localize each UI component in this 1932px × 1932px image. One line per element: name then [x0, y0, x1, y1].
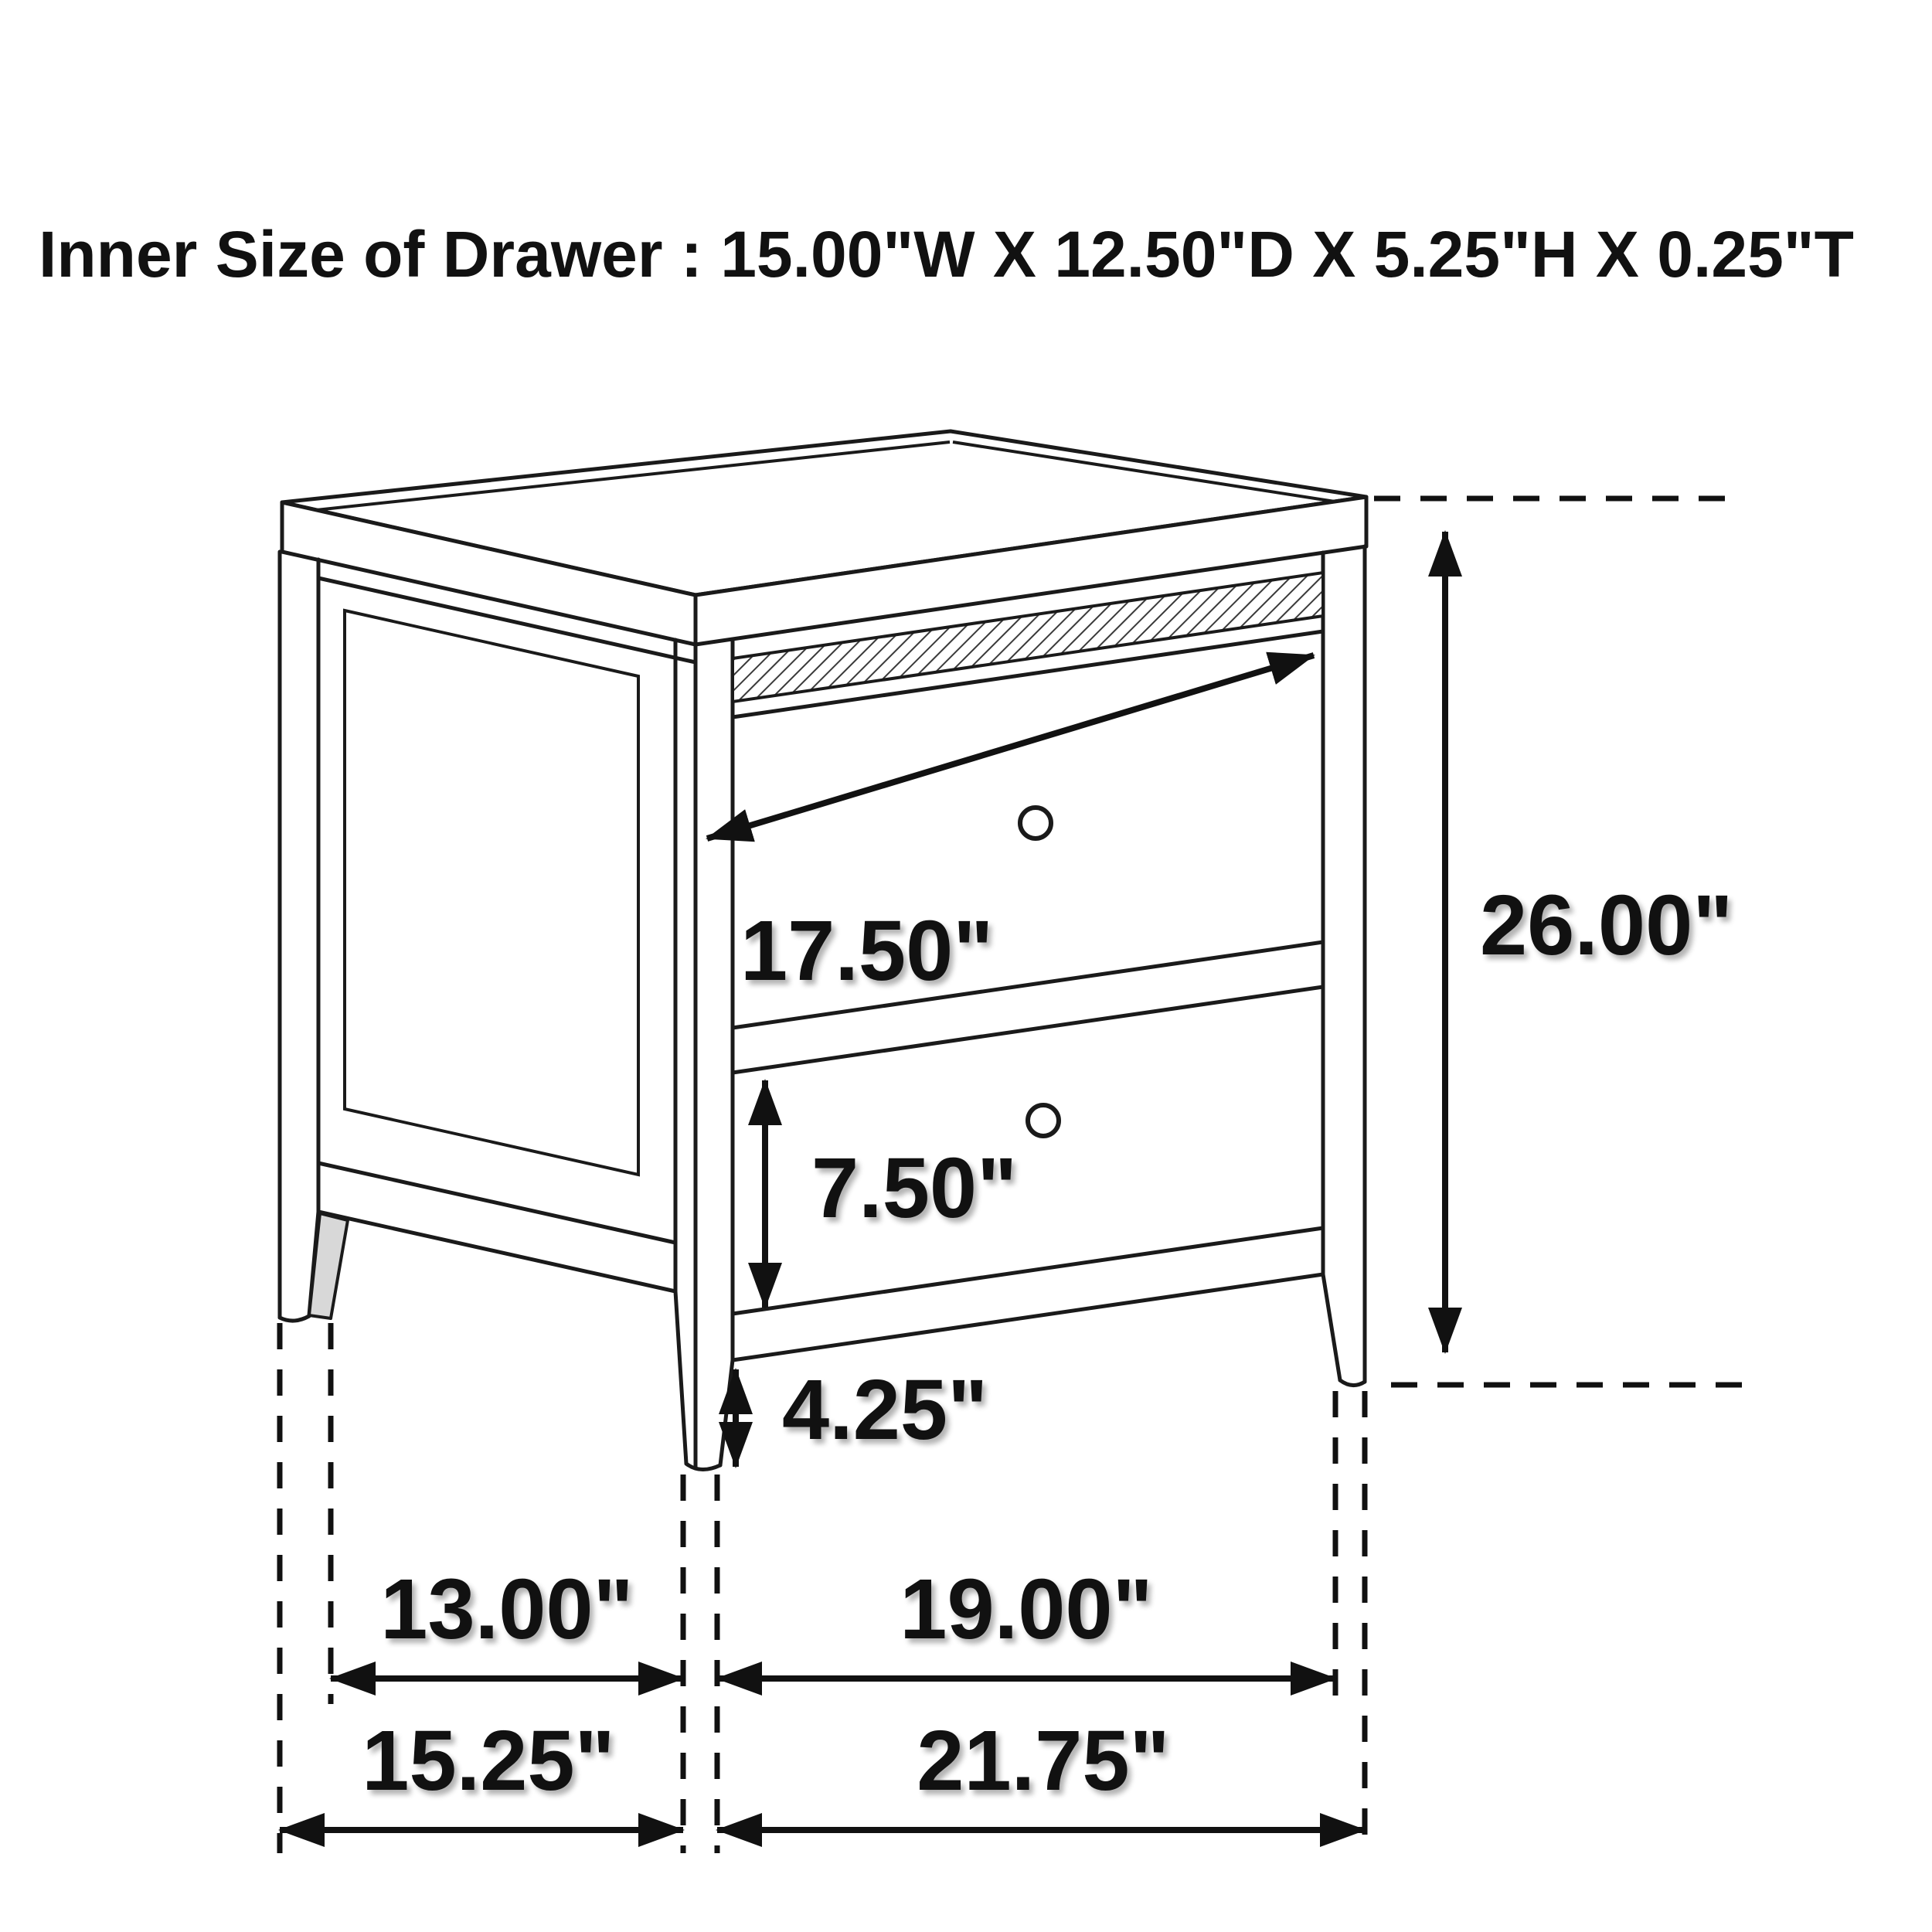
dim-front-inner-span: 19.00" — [717, 1562, 1335, 1679]
mid-rail-bottom-edge — [733, 987, 1323, 1073]
front-left-leg-front-taper — [720, 1360, 733, 1465]
dim-label-15-25: 15.25" — [362, 1713, 614, 1808]
dim-label-21-75: 21.75" — [917, 1713, 1169, 1808]
top-drawer-knob — [1020, 808, 1051, 838]
front-left-leg-foot — [686, 1464, 720, 1470]
page-title: Inner Size of Drawer : 15.00"W X 12.50"D… — [39, 218, 1854, 291]
nightstand-dimension-diagram: Inner Size of Drawer : 15.00"W X 12.50"D… — [0, 0, 1932, 1932]
side-panel — [280, 552, 696, 1318]
front-left-leg-side-taper — [675, 1291, 686, 1464]
dim-label-19-00: 19.00" — [900, 1562, 1152, 1657]
bottom-drawer-knob — [1028, 1105, 1059, 1136]
dim-overall-height: 26.00" — [1445, 532, 1733, 1352]
bottom-rail-bottom-edge — [733, 1274, 1323, 1360]
dim-label-26-00: 26.00" — [1480, 878, 1733, 973]
dim-bottom-drawer-height: 7.50" — [765, 1080, 1017, 1308]
dimension-annotations: 17.50" 26.00" 7.50" 4.25" 13.00" 19.00" … — [280, 532, 1733, 1830]
dim-label-7-50: 7.50" — [811, 1141, 1017, 1236]
right-leg-taper — [1323, 1274, 1340, 1380]
back-left-leg — [280, 1212, 348, 1321]
bottom-drawer-bottom-edge — [733, 1228, 1323, 1314]
right-leg-foot — [1340, 1380, 1365, 1386]
diagram-svg: Inner Size of Drawer : 15.00"W X 12.50"D… — [0, 0, 1932, 1932]
right-leg — [1323, 546, 1365, 1386]
dim-overall-depth: 15.25" — [280, 1713, 683, 1830]
side-bottom-rail-bottom — [318, 1212, 675, 1291]
front-left-leg — [675, 639, 733, 1470]
back-left-leg-foot — [280, 1316, 309, 1321]
dim-label-17-50: 17.50" — [740, 903, 993, 998]
dim-label-13-00: 13.00" — [380, 1562, 633, 1657]
dim-overall-width: 21.75" — [717, 1713, 1365, 1830]
dim-side-inner-span: 13.00" — [331, 1562, 683, 1679]
dim-label-4-25: 4.25" — [782, 1362, 988, 1458]
side-recessed-panel — [345, 611, 638, 1175]
dim-leg-height: 4.25" — [736, 1362, 988, 1467]
side-bottom-rail-top — [318, 1163, 675, 1243]
